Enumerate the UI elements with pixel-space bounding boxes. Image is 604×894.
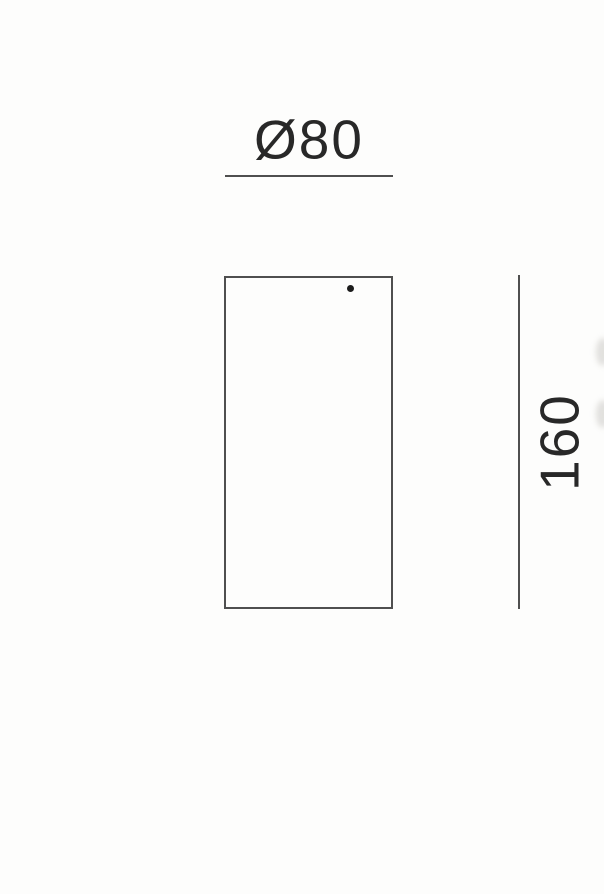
diameter-dimension-line (225, 175, 393, 177)
diameter-dimension-label: Ø80 (254, 113, 364, 168)
dimension-drawing: Ø80 160 (0, 0, 604, 894)
edge-smudge-artifact (596, 338, 604, 366)
fixture-body-outline (224, 276, 393, 609)
height-dimension-label: 160 (533, 393, 588, 491)
height-dimension-line (518, 275, 520, 609)
surface-detail-dot (347, 285, 354, 292)
edge-smudge-artifact (596, 400, 604, 428)
